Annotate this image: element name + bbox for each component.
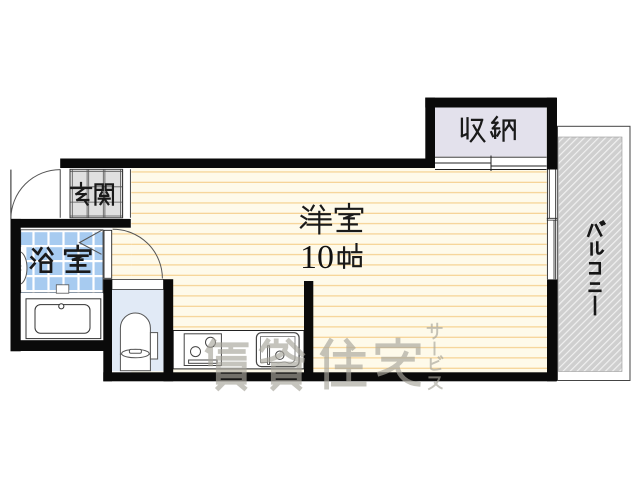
svg-text:10: 10 (300, 239, 334, 276)
